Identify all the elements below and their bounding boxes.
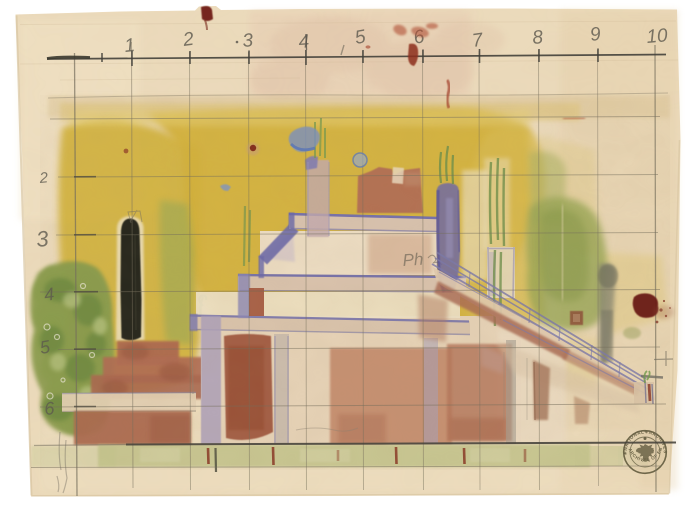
svg-text:1: 1 [123, 35, 136, 57]
svg-text:10: 10 [646, 25, 669, 48]
svg-text:4: 4 [298, 31, 310, 53]
